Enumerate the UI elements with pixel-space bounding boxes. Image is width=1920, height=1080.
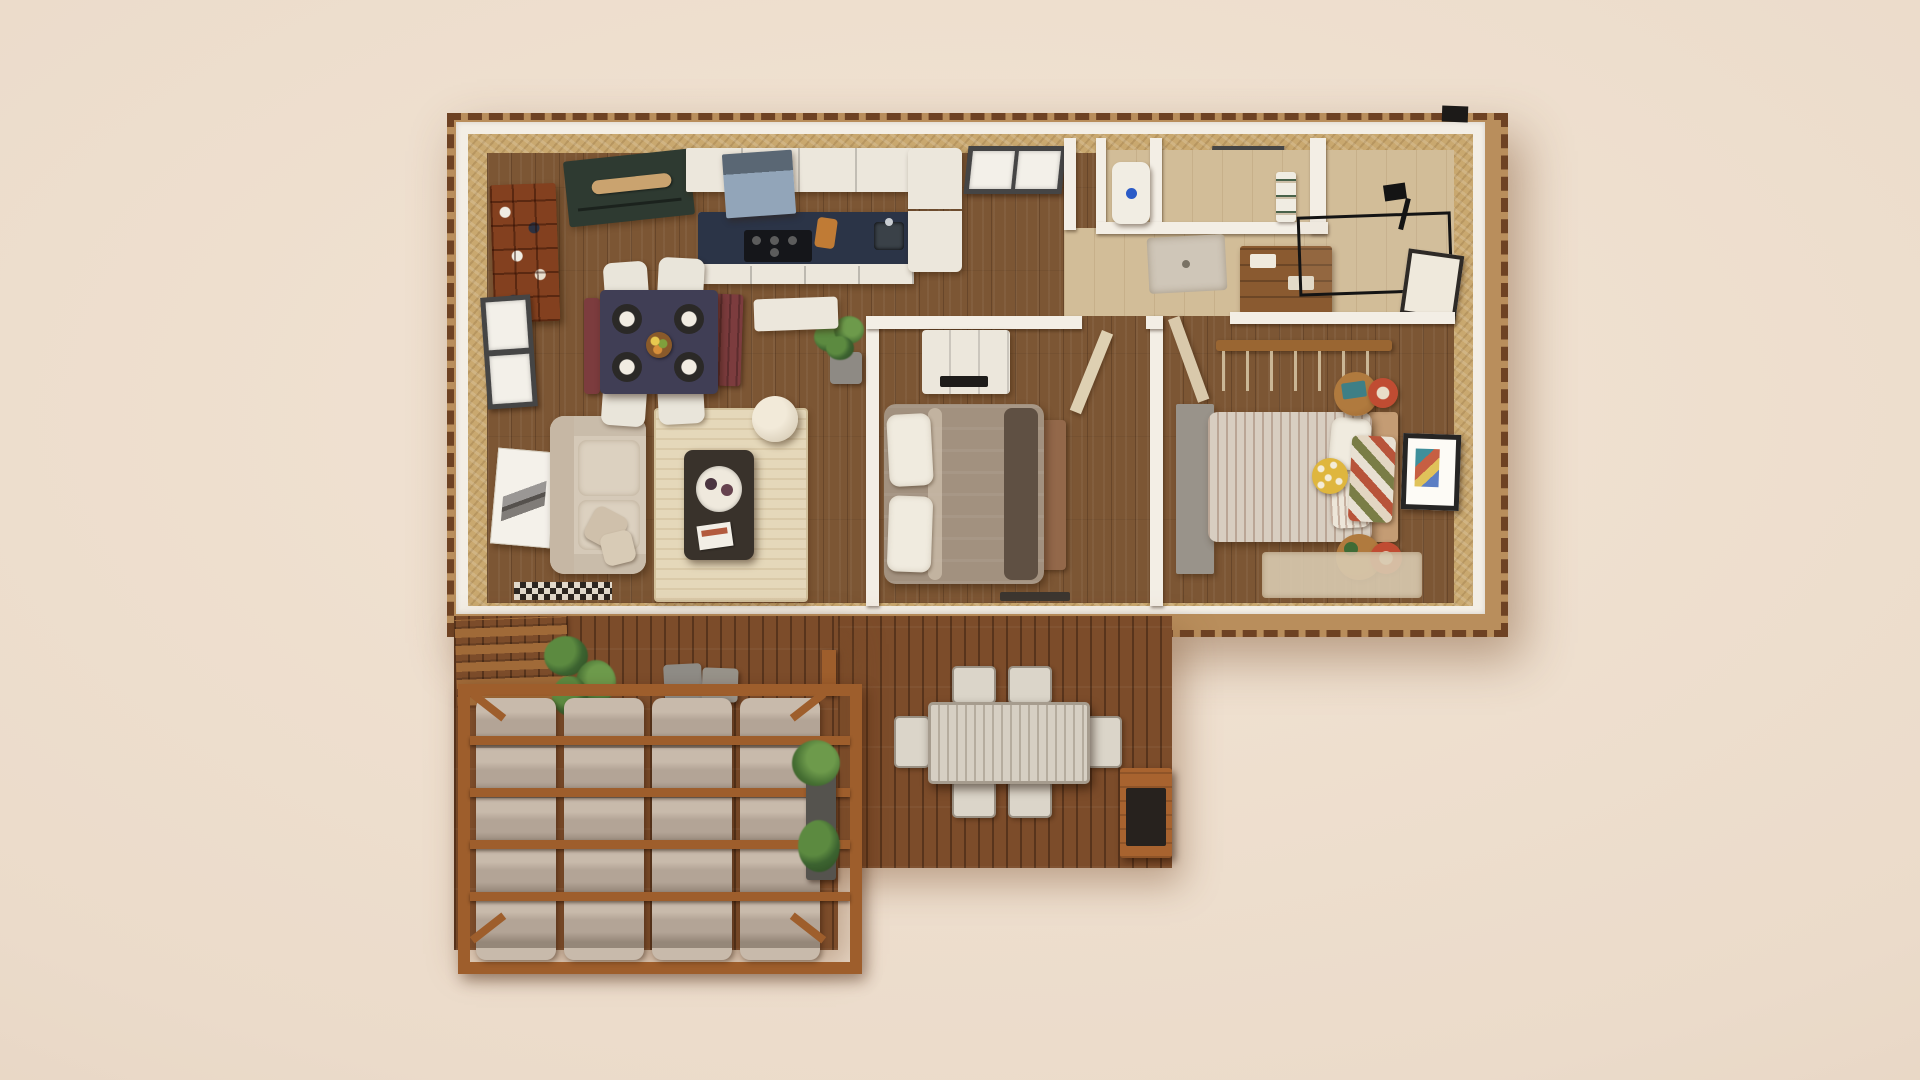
grill-panel: [1126, 788, 1166, 846]
cooktop: [744, 230, 812, 262]
wall-mirror: [1400, 248, 1465, 321]
coffee-table: [684, 450, 754, 560]
green-media-cabinet: [563, 149, 695, 228]
side-table-book: [1341, 380, 1367, 399]
bedroom2-rug: [1262, 552, 1422, 598]
planter-plant: [798, 820, 840, 872]
bedroom1-top-wall: [866, 316, 1082, 329]
round-pouf: [752, 396, 798, 442]
bedroom2-clothes-rail: [1216, 340, 1392, 351]
white-console-table: [753, 297, 838, 332]
shower-tray: [1147, 234, 1228, 294]
bed1-pillow: [886, 413, 934, 487]
floor-plan-scene: [0, 0, 1920, 1080]
place-setting: [674, 352, 704, 382]
window-pane: [969, 151, 1015, 189]
window-pane: [1015, 151, 1061, 189]
range-hood: [722, 150, 796, 219]
pergola-crossbar: [470, 840, 850, 849]
partition-p2: [1096, 138, 1106, 230]
magazine-print: [701, 527, 728, 537]
place-setting: [612, 352, 642, 382]
refrigerator: [908, 148, 962, 272]
burner: [752, 236, 761, 245]
outdoor-chair: [952, 666, 996, 704]
outdoor-chair: [1086, 716, 1122, 768]
upper-kitchen-cabinets: [686, 148, 914, 192]
outdoor-dining-table: [928, 702, 1090, 784]
outdoor-chair: [952, 780, 996, 818]
living-room-window: [480, 294, 538, 409]
cutting-board: [814, 217, 838, 249]
leaning-artwork: [490, 448, 558, 549]
artwork-sketch: [501, 467, 548, 528]
tv-slot: [940, 376, 988, 387]
bedroom1-top-wall-right: [1146, 316, 1163, 329]
tv-soundbar: [591, 173, 672, 195]
bed1-throw: [1004, 408, 1038, 580]
grill-bar-cart: [1120, 768, 1172, 858]
magazine: [696, 522, 733, 550]
kitchen-window: [963, 146, 1066, 194]
plant-leaves: [826, 336, 854, 360]
bedroom2-bed: [1208, 412, 1398, 542]
red-ring-stool: [1368, 378, 1398, 408]
bedroom2-wall-art: [1401, 433, 1462, 511]
checkered-doormat: [514, 582, 612, 600]
place-setting: [674, 304, 704, 334]
planter-plant: [792, 740, 840, 786]
cabinet-groove: [578, 198, 682, 212]
cup: [705, 478, 717, 490]
faucet: [885, 218, 893, 226]
cup: [721, 484, 733, 496]
sofa: [550, 416, 646, 574]
partition-p1: [1064, 138, 1076, 230]
bedroom1-bed: [884, 404, 1074, 584]
window-pane: [485, 300, 528, 351]
boiler-dial: [1126, 188, 1137, 199]
outdoor-chair: [1008, 666, 1052, 704]
bedroom1-floor-mat: [1000, 592, 1070, 601]
pergola-crossbar: [470, 788, 850, 797]
place-setting: [612, 304, 642, 334]
sofa-cushion: [578, 440, 640, 496]
roof-vent: [1442, 106, 1469, 123]
kitchen-sink: [874, 222, 904, 250]
yellow-polka-dot-pillow: [1312, 458, 1348, 494]
boiler-unit: [1112, 162, 1150, 224]
pergola-crossbar: [470, 736, 850, 745]
pergola: [458, 684, 862, 974]
outdoor-chair: [894, 716, 930, 768]
patchwork-quilt: [1348, 435, 1396, 523]
burner: [770, 248, 779, 257]
outdoor-chair: [1008, 780, 1052, 818]
towel-stack: [1276, 172, 1296, 222]
dining-table: [600, 290, 718, 394]
window-pane: [489, 354, 532, 405]
shower-head: [1383, 183, 1407, 202]
island-drawers: [698, 266, 914, 284]
serving-tray: [696, 466, 742, 512]
pergola-crossbar: [470, 892, 850, 901]
vanity-towel: [1250, 254, 1276, 268]
bed1-pillow: [887, 495, 934, 572]
bedroom-divider-wall: [1150, 316, 1163, 606]
burner: [788, 236, 797, 245]
bedroom2-top-wall: [1230, 312, 1455, 324]
fruit-bowl: [646, 332, 672, 358]
burner: [770, 236, 779, 245]
dining-bench: [584, 298, 600, 394]
bedroom1-dresser-tv-unit: [922, 330, 1010, 394]
wall-art-print: [1414, 448, 1439, 487]
shower-drain: [1182, 260, 1190, 268]
sofa-backrest: [550, 416, 574, 574]
partition-p3: [1150, 138, 1162, 230]
kitchen-island: [698, 212, 914, 284]
